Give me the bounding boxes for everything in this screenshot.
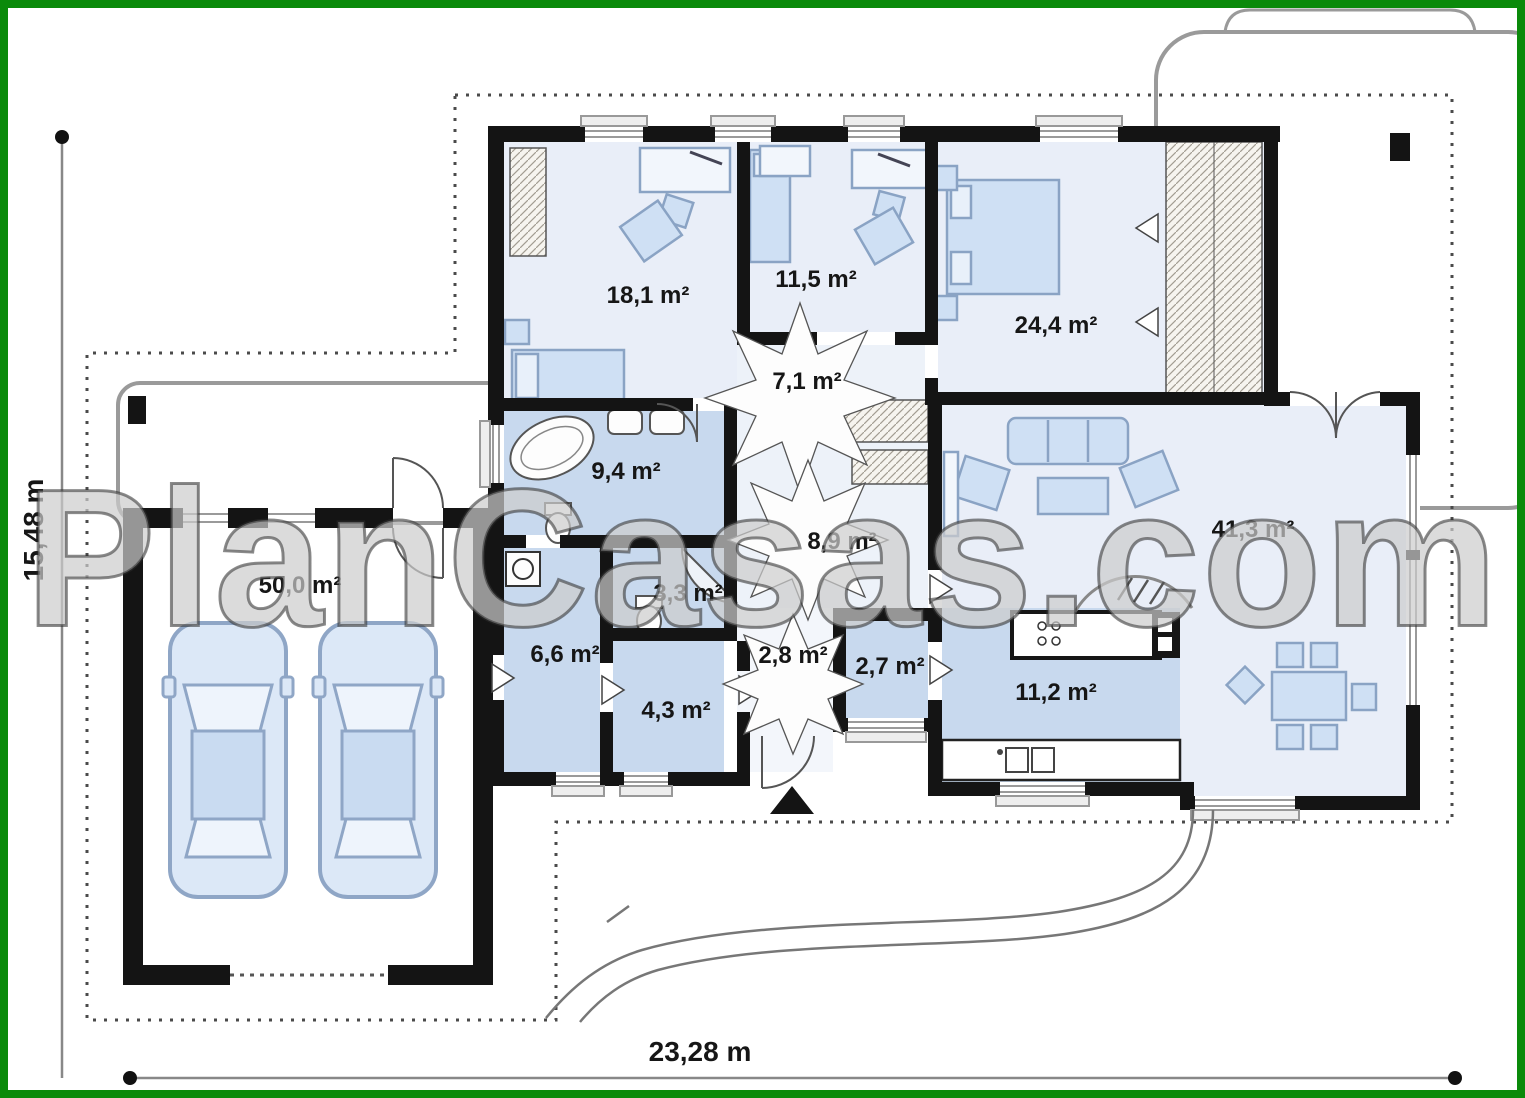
width-dimension-label: 23,28 m xyxy=(649,1036,752,1068)
entrance-arrow-icon xyxy=(770,786,814,814)
room-area-label: 50,0 m² xyxy=(259,572,342,600)
car-icon xyxy=(313,623,443,897)
kitchen-counter-icon xyxy=(942,740,1180,780)
room-area-label: 9,4 m² xyxy=(591,458,660,486)
car-icon xyxy=(163,623,293,897)
room-area-label: 41,3 m² xyxy=(1212,516,1295,544)
height-dimension-label: 15,48 m xyxy=(18,479,50,582)
room-area-label: 2,7 m² xyxy=(855,653,924,681)
room-area-label: 3,3 m² xyxy=(653,580,722,608)
floor-plan-svg xyxy=(0,0,1525,1098)
tv-sideboard-icon xyxy=(944,452,958,536)
kitchen-island-icon xyxy=(1012,612,1180,658)
room-area-label: 8,9 m² xyxy=(807,528,876,556)
room-area-label: 4,3 m² xyxy=(641,697,710,725)
dimension-line-vertical xyxy=(55,130,69,1078)
room-area-label: 11,5 m² xyxy=(775,266,856,294)
room-area-label: 7,1 m² xyxy=(772,368,841,396)
room-area-label: 11,2 m² xyxy=(1015,679,1096,707)
dimension-line-horizontal xyxy=(123,1071,1462,1085)
walkway-path xyxy=(546,810,1213,1022)
room-area-label: 6,6 m² xyxy=(530,641,599,669)
coffee-table-icon xyxy=(1038,478,1108,514)
room-area-label: 2,8 m² xyxy=(758,642,827,670)
canopy-outline xyxy=(118,383,510,523)
pillar-icon xyxy=(128,396,146,424)
washing-machine-icon xyxy=(506,552,540,586)
room-area-label: 24,4 m² xyxy=(1015,312,1098,340)
sofa-icon xyxy=(1008,418,1128,464)
room-area-label: 18,1 m² xyxy=(607,282,690,310)
pillar-icon xyxy=(1390,133,1410,161)
